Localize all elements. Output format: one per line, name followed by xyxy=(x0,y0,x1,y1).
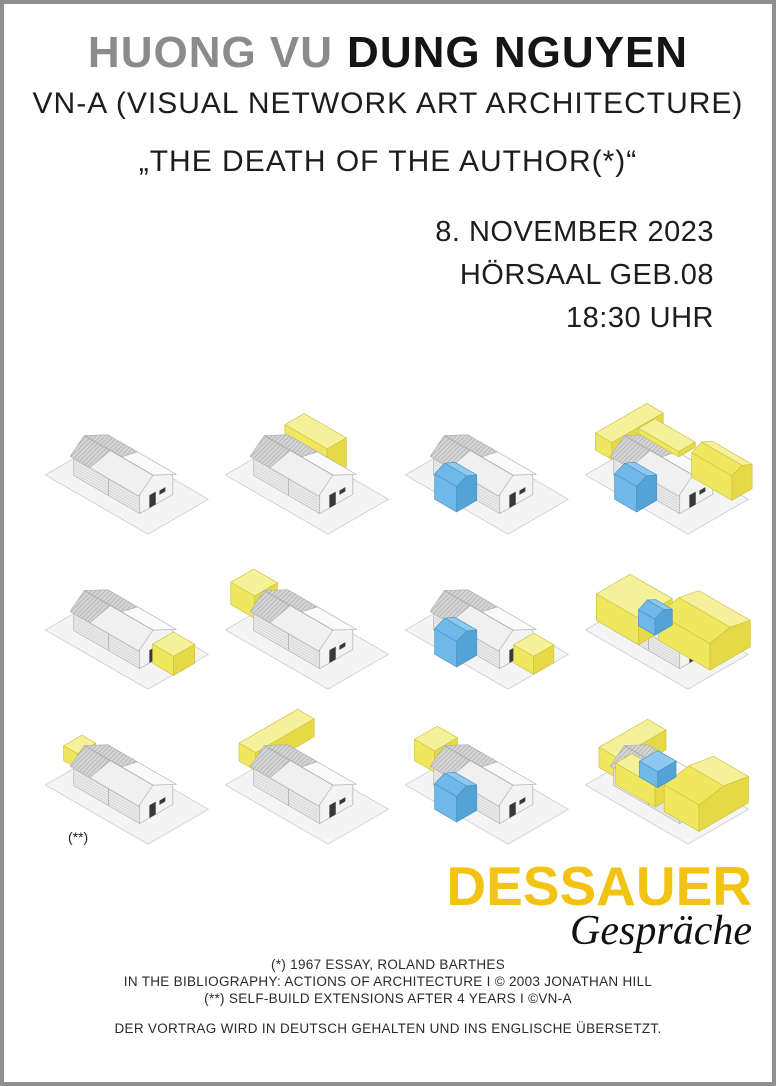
credits-block: (*) 1967 ESSAY, ROLAND BARTHES IN THE BI… xyxy=(4,956,772,1007)
house-axonometric-drawing xyxy=(400,396,580,539)
credit-line: (**) SELF-BUILD EXTENSIONS AFTER 4 YEARS… xyxy=(4,990,772,1007)
house-axonometric-drawing xyxy=(220,396,400,539)
house-variant-r3c4 xyxy=(580,706,760,849)
language-note: DER VORTRAG WIRD IN DEUTSCH GEHALTEN UND… xyxy=(4,1021,772,1036)
house-variant-r3c3 xyxy=(400,706,580,849)
house-axonometric-drawing xyxy=(580,551,760,694)
speaker-name-2: DUNG NGUYEN xyxy=(347,28,688,77)
house-axonometric-drawing xyxy=(220,706,400,849)
house-variant-r3c1 xyxy=(40,706,220,849)
lecture-poster: HUONG VUDUNG NGUYEN VN-A (VISUAL NETWORK… xyxy=(0,0,776,1086)
credit-line: (*) 1967 ESSAY, ROLAND BARTHES xyxy=(4,956,772,973)
lecture-title: „THE DEATH OF THE AUTHOR(*)“ xyxy=(4,145,772,179)
house-variant-r2c3 xyxy=(400,551,580,694)
credit-line: IN THE BIBLIOGRAPHY: ACTIONS OF ARCHITEC… xyxy=(4,973,772,990)
event-date: 8. NOVEMBER 2023 xyxy=(4,211,714,254)
house-variant-r1c1 xyxy=(40,396,220,539)
house-variant-r3c2 xyxy=(220,706,400,849)
house-diagram-grid xyxy=(4,396,772,849)
logo-subtitle: Gespräche xyxy=(4,910,752,952)
event-time: 18:30 UHR xyxy=(4,297,714,340)
house-axonometric-drawing xyxy=(40,396,220,539)
house-variant-r2c2 xyxy=(220,551,400,694)
house-axonometric-drawing xyxy=(40,551,220,694)
event-location: HÖRSAAL GEB.08 xyxy=(4,254,714,297)
house-axonometric-drawing xyxy=(40,706,220,849)
house-variant-r1c3 xyxy=(400,396,580,539)
dessauer-gespraeche-logo: DESSAUER Gespräche xyxy=(4,859,772,952)
house-axonometric-drawing xyxy=(400,706,580,849)
house-variant-r2c1 xyxy=(40,551,220,694)
house-axonometric-drawing xyxy=(580,706,760,849)
house-axonometric-drawing xyxy=(580,396,760,539)
house-variant-r1c2 xyxy=(220,396,400,539)
page-title: HUONG VUDUNG NGUYEN xyxy=(4,28,772,77)
studio-subtitle: VN-A (VISUAL NETWORK ART ARCHITECTURE) xyxy=(4,87,772,121)
event-details: 8. NOVEMBER 2023 HÖRSAAL GEB.08 18:30 UH… xyxy=(4,211,772,340)
house-axonometric-drawing xyxy=(220,551,400,694)
house-variant-r1c4 xyxy=(580,396,760,539)
logo-wordmark: DESSAUER xyxy=(4,859,752,914)
speaker-name-1: HUONG VU xyxy=(88,28,333,77)
house-variant-r2c4 xyxy=(580,551,760,694)
house-axonometric-drawing xyxy=(400,551,580,694)
